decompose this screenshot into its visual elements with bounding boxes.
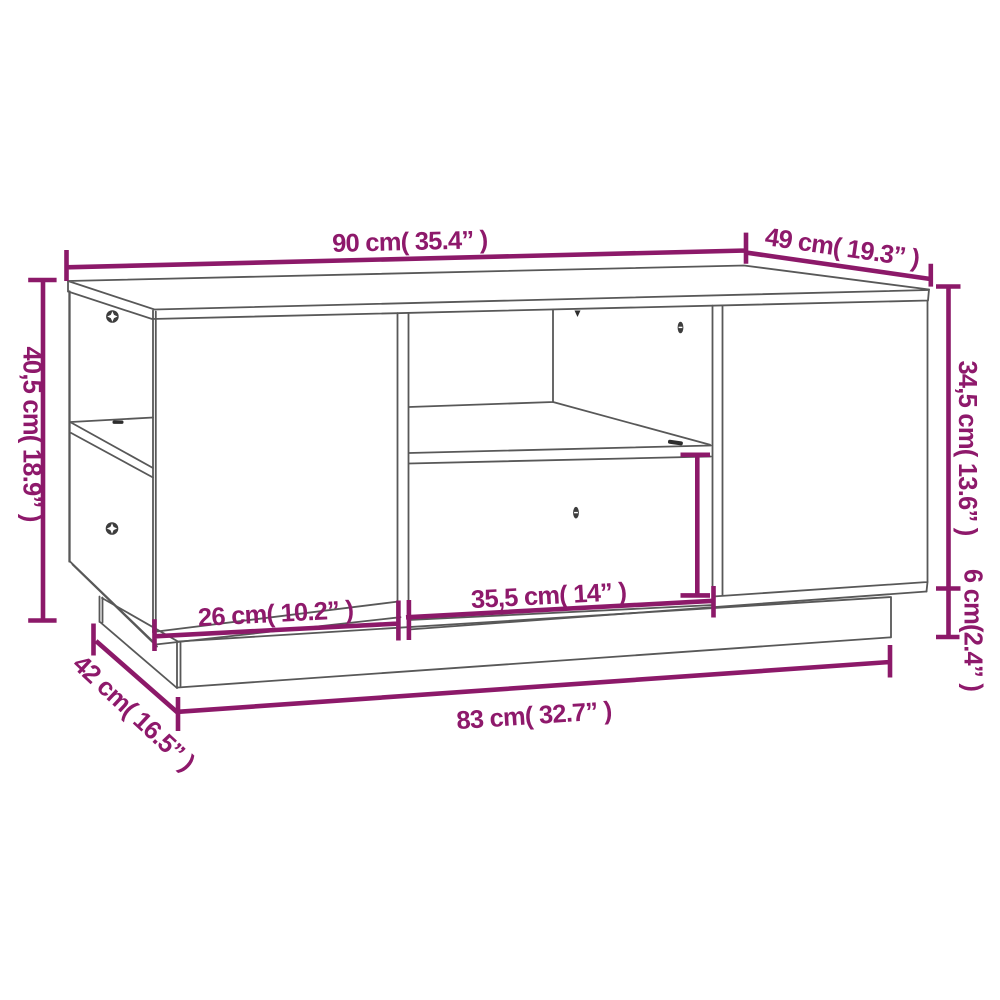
svg-text:40,5 cm( 18.9” ): 40,5 cm( 18.9” ): [18, 346, 46, 521]
svg-text:90 cm( 35.4” ): 90 cm( 35.4” ): [332, 226, 488, 258]
svg-text:6 cm(2.4” ): 6 cm(2.4” ): [959, 569, 987, 691]
svg-text:34,5 cm( 13.6” ): 34,5 cm( 13.6” ): [953, 360, 981, 535]
